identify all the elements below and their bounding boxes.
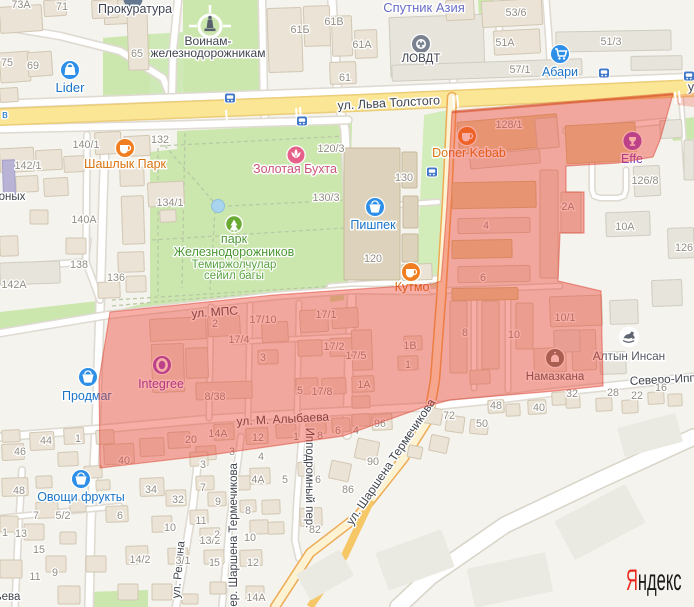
- svg-text:50: 50: [476, 418, 488, 430]
- svg-text:Овощи фрукты: Овощи фрукты: [37, 490, 125, 504]
- svg-text:12: 12: [247, 557, 259, 569]
- svg-text:Шашлык Парк: Шашлык Парк: [84, 157, 167, 171]
- svg-text:Алтын Инсан: Алтын Инсан: [593, 349, 665, 363]
- svg-text:14А: 14А: [246, 592, 266, 604]
- svg-text:оных: оных: [0, 191, 26, 203]
- svg-text:51/3: 51/3: [600, 36, 621, 48]
- svg-text:6: 6: [315, 474, 321, 486]
- svg-text:5/2: 5/2: [55, 510, 70, 522]
- svg-text:10А: 10А: [615, 221, 635, 233]
- svg-text:22: 22: [631, 390, 643, 402]
- svg-text:65: 65: [131, 48, 143, 60]
- svg-text:9: 9: [52, 567, 58, 579]
- svg-text:пер. Шаршена Термечикова: пер. Шаршена Термечикова: [228, 463, 240, 607]
- svg-text:2: 2: [214, 529, 220, 541]
- svg-text:130: 130: [395, 172, 413, 184]
- svg-text:железнодорожникам: железнодорожникам: [151, 46, 266, 60]
- svg-text:5: 5: [282, 474, 288, 486]
- svg-text:3: 3: [200, 459, 206, 471]
- svg-text:10: 10: [164, 522, 176, 534]
- svg-text:120: 120: [364, 253, 382, 265]
- svg-text:136: 136: [107, 272, 125, 284]
- svg-text:5: 5: [214, 557, 220, 569]
- svg-text:140А: 140А: [71, 214, 97, 226]
- svg-text:ЛОВДТ: ЛОВДТ: [402, 53, 441, 65]
- svg-text:40: 40: [533, 402, 545, 414]
- svg-text:Железнодорожников: Железнодорожников: [174, 245, 295, 259]
- svg-text:51А: 51А: [495, 37, 515, 49]
- svg-text:10: 10: [244, 532, 256, 544]
- svg-text:61: 61: [339, 72, 351, 84]
- svg-text:57/1: 57/1: [509, 64, 530, 76]
- svg-text:Пишпек: Пишпек: [350, 218, 396, 232]
- svg-text:130/3: 130/3: [312, 192, 339, 204]
- svg-text:142А: 142А: [1, 279, 27, 291]
- svg-text:11: 11: [29, 571, 40, 583]
- svg-text:сейил багы: сейил багы: [204, 270, 264, 282]
- svg-text:8: 8: [245, 505, 251, 517]
- svg-text:Золотая Бухта: Золотая Бухта: [253, 162, 337, 176]
- svg-text:75: 75: [1, 57, 13, 69]
- svg-text:4А: 4А: [251, 474, 265, 486]
- svg-text:Lider: Lider: [56, 80, 86, 95]
- svg-text:140/1: 140/1: [72, 139, 99, 151]
- svg-text:72: 72: [443, 410, 455, 422]
- svg-text:32: 32: [172, 494, 184, 506]
- svg-text:Яндекс: Яндекс: [626, 564, 681, 597]
- svg-text:14/2: 14/2: [129, 554, 150, 566]
- svg-text:13: 13: [15, 528, 27, 540]
- svg-text:Спутник Азия: Спутник Азия: [383, 0, 465, 15]
- svg-text:86: 86: [342, 484, 354, 496]
- svg-text:парк: парк: [221, 232, 248, 246]
- svg-text:15: 15: [33, 544, 45, 556]
- svg-text:7: 7: [200, 482, 206, 494]
- svg-text:ьева: ьева: [0, 591, 21, 603]
- svg-text:126/8: 126/8: [631, 175, 658, 187]
- svg-text:34: 34: [145, 484, 157, 496]
- svg-text:61А: 61А: [352, 39, 372, 51]
- svg-text:6: 6: [117, 510, 123, 522]
- svg-text:1: 1: [2, 527, 8, 539]
- svg-text:138: 138: [70, 259, 88, 271]
- svg-text:7: 7: [33, 510, 39, 522]
- svg-text:Ипподромный пер.: Ипподромный пер.: [303, 428, 315, 529]
- svg-text:71: 71: [56, 1, 68, 13]
- svg-text:16: 16: [655, 382, 667, 394]
- svg-text:126: 126: [675, 242, 693, 254]
- svg-text:9: 9: [215, 496, 221, 508]
- svg-text:Абари: Абари: [542, 65, 578, 79]
- svg-text:142/1: 142/1: [14, 160, 41, 172]
- svg-text:61Б: 61Б: [290, 24, 309, 36]
- svg-text:61В: 61В: [324, 16, 343, 28]
- svg-text:82: 82: [309, 524, 321, 536]
- svg-text:1: 1: [75, 433, 81, 445]
- svg-text:28: 28: [607, 387, 619, 399]
- svg-text:134/1: 134/1: [156, 197, 183, 209]
- svg-text:90: 90: [367, 456, 379, 468]
- svg-text:4: 4: [258, 451, 264, 463]
- svg-text:48: 48: [490, 400, 502, 412]
- svg-text:120/3: 120/3: [317, 143, 344, 155]
- svg-text:11: 11: [195, 515, 206, 527]
- svg-text:46: 46: [14, 446, 26, 458]
- svg-text:48: 48: [13, 485, 25, 497]
- svg-text:69: 69: [27, 60, 39, 72]
- svg-text:ул: ул: [688, 80, 694, 94]
- svg-text:132: 132: [151, 134, 169, 146]
- svg-text:44: 44: [40, 435, 52, 447]
- svg-text:3/1: 3/1: [175, 555, 190, 567]
- svg-text:73А: 73А: [11, 0, 31, 11]
- svg-text:Прокуратура: Прокуратура: [98, 2, 172, 16]
- svg-text:53/6: 53/6: [505, 7, 526, 19]
- svg-text:в: в: [2, 109, 8, 121]
